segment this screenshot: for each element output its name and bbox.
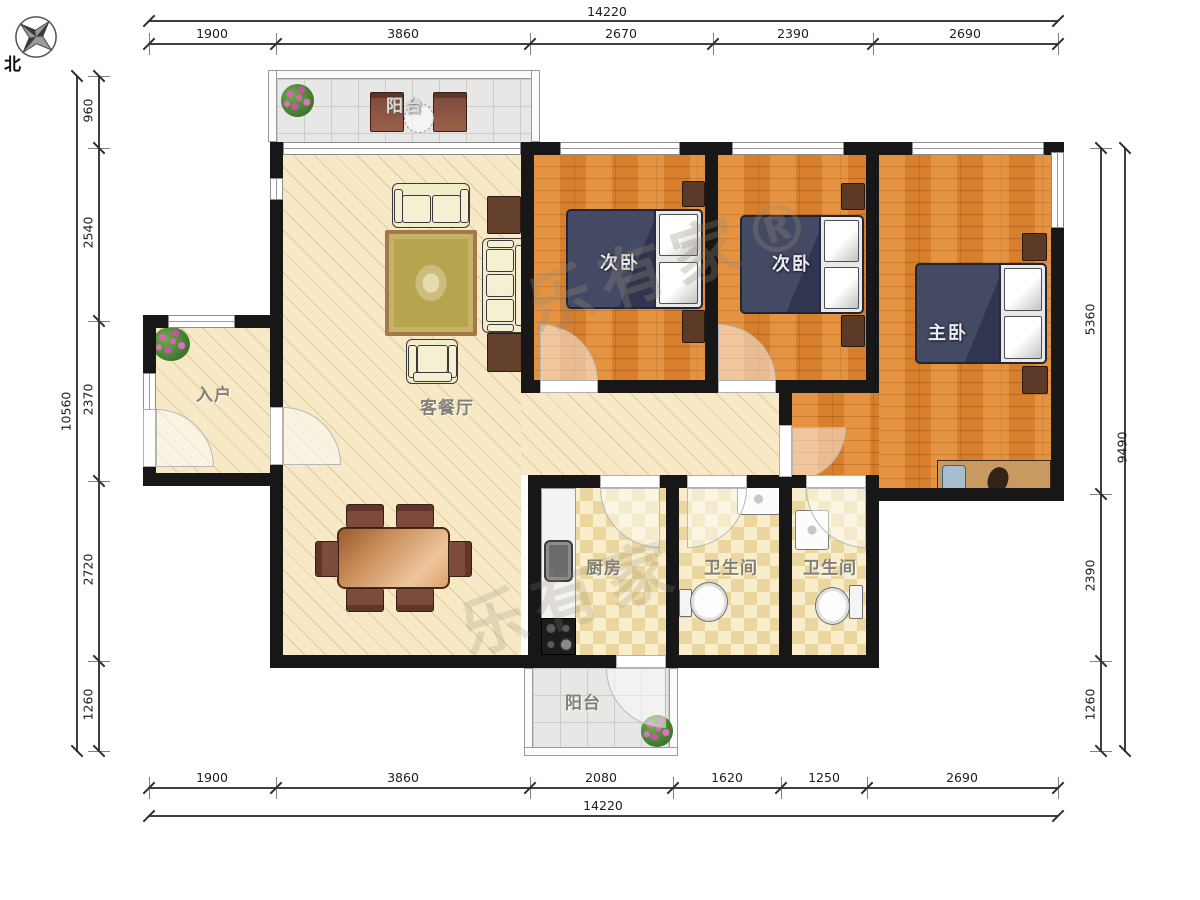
bedroom-b-door (718, 380, 776, 393)
dim-line (149, 43, 1058, 45)
stove (541, 618, 576, 655)
bathroom-b-door (806, 475, 866, 488)
room-label-balcony-bottom: 阳台 (565, 689, 601, 714)
entry-top-window (168, 315, 235, 328)
nightstand (1022, 233, 1047, 261)
wall (866, 475, 879, 668)
toilet (849, 585, 863, 619)
dim-left-seg: 2540 (81, 203, 96, 263)
room-label-entry: 入户 (196, 381, 232, 406)
entry-main-door (143, 409, 156, 467)
bathroom-a-door (687, 475, 747, 488)
floor-plan: 北 (0, 0, 1200, 900)
armchair (406, 339, 458, 384)
room-label-kitchen: 厨房 (586, 554, 622, 579)
dim-line (149, 20, 1058, 22)
dim-line (76, 76, 78, 752)
dining-chair (448, 541, 472, 577)
bedroom-b-window (732, 142, 844, 155)
potted-plant (281, 84, 314, 117)
area-rug (385, 230, 477, 336)
balcony-planter (433, 92, 467, 132)
kitchen-sink (544, 540, 573, 582)
dim-line (149, 815, 1058, 817)
balcony-top-rim (531, 70, 540, 142)
dim-right-total: 9490 (1115, 408, 1130, 488)
dining-table (337, 527, 450, 589)
dining-chair (315, 541, 339, 577)
room-label-bathroom-b: 卫生间 (803, 554, 857, 579)
bedroom-a-window (560, 142, 680, 155)
balcony-top-rim (268, 70, 277, 142)
double-bed (915, 263, 1047, 364)
dim-bottom-seg: 1620 (697, 770, 757, 785)
room-label-living: 客餐厅 (420, 394, 474, 419)
master-side-window (1051, 152, 1064, 228)
wall (866, 488, 1064, 501)
bedroom-a-door (540, 380, 598, 393)
wall (528, 475, 541, 668)
side-table (487, 333, 523, 372)
dim-left-seg: 960 (81, 81, 96, 141)
nightstand (682, 310, 705, 343)
dim-top-seg: 1900 (182, 26, 242, 41)
compass-north-label: 北 (4, 50, 21, 75)
dining-chair (396, 588, 434, 612)
wall (666, 475, 679, 668)
nightstand (841, 315, 865, 347)
dim-bottom-seg: 1250 (794, 770, 854, 785)
toilet (815, 587, 850, 625)
room-label-bedroom-b: 次卧 (772, 250, 812, 276)
wall (270, 473, 283, 668)
dim-right-seg: 5360 (1083, 290, 1098, 350)
dim-bottom-seg: 3860 (373, 770, 433, 785)
dim-top-seg: 2690 (935, 26, 995, 41)
dining-chair (346, 588, 384, 612)
dim-right-seg: 1260 (1083, 675, 1098, 735)
dim-left-seg: 2370 (81, 370, 96, 430)
dim-top-seg: 2390 (763, 26, 823, 41)
dim-left-total: 10560 (59, 372, 74, 452)
dim-line (149, 787, 1058, 789)
room-label-master: 主卧 (928, 319, 968, 345)
kitchen-door (600, 475, 660, 488)
dim-bottom-seg: 1900 (182, 770, 242, 785)
wall (521, 142, 534, 393)
room-label-bedroom-a: 次卧 (600, 249, 640, 275)
master-door (779, 425, 792, 477)
side-table (487, 196, 521, 234)
wall (779, 380, 792, 668)
dim-top-seg: 2670 (591, 26, 651, 41)
wall (143, 473, 283, 486)
nightstand (1022, 366, 1048, 394)
nightstand (682, 181, 705, 207)
dim-left-seg: 2720 (81, 540, 96, 600)
wall (705, 142, 718, 393)
dining-chair (396, 504, 434, 528)
dim-top-seg: 3860 (373, 26, 433, 41)
loveseat-sofa (392, 183, 470, 228)
room-label-balcony-top: 阳台 (386, 92, 424, 117)
balcony-bottom-rim (524, 747, 678, 756)
dining-chair (346, 504, 384, 528)
balcony-bottom-rim (524, 668, 533, 756)
balcony-bottom-rim (669, 668, 678, 756)
dim-top-total: 14220 (527, 4, 687, 19)
dim-right-seg: 2390 (1083, 546, 1098, 606)
balcony-door (616, 655, 666, 668)
potted-plant (152, 327, 190, 361)
nightstand (841, 183, 865, 210)
dim-line (98, 76, 100, 752)
toilet (690, 582, 728, 622)
entry-living-door (270, 407, 283, 465)
hallway-floor (521, 393, 779, 475)
wall (866, 142, 879, 393)
room-label-bathroom-a: 卫生间 (704, 554, 758, 579)
balcony-slider-window (283, 142, 521, 155)
dim-bottom-seg: 2690 (932, 770, 992, 785)
dim-bottom-seg: 2080 (571, 770, 631, 785)
dim-bottom-total: 14220 (523, 798, 683, 813)
entry-side-window (143, 373, 156, 413)
balcony-top-rim (268, 70, 540, 79)
dim-left-seg: 1260 (81, 675, 96, 735)
living-side-window (270, 178, 283, 200)
master-window (912, 142, 1044, 155)
